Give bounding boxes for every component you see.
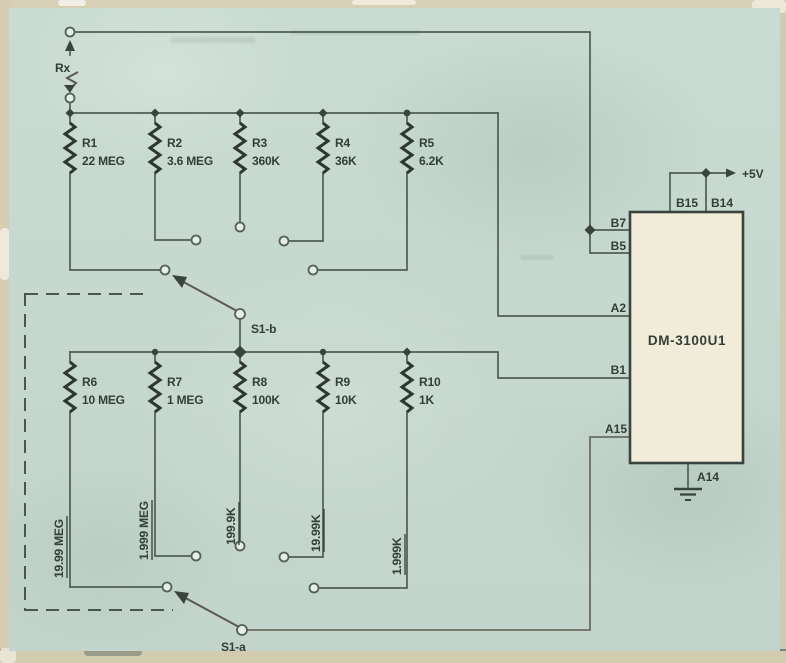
r4-value: 36K — [335, 154, 357, 168]
r8-name: R8 — [252, 375, 267, 389]
s1b-contact-4 — [280, 237, 289, 246]
switch-s1a-wiper — [174, 591, 239, 627]
pin-b15: B15 — [676, 196, 698, 210]
svg-text:1.999K: 1.999K — [390, 537, 404, 575]
pin-a15: A15 — [605, 422, 627, 436]
resistor-r10-symbol — [402, 362, 412, 412]
rx-bottom-terminal — [66, 94, 75, 103]
wire-rx-top-to-b7b5 — [75, 32, 590, 225]
resistor-r3-symbol — [235, 123, 245, 173]
r9-value: 10K — [335, 393, 357, 407]
range-label-1: 19.99 MEG — [52, 516, 67, 578]
rx-down-arrow — [64, 85, 75, 93]
r6-name: R6 — [82, 375, 97, 389]
s1a-label: S1-a — [221, 640, 246, 654]
s1a-contact-5 — [310, 584, 319, 593]
r6-value: 10 MEG — [82, 393, 125, 407]
ganged-switch-dashed-link — [25, 293, 173, 611]
s1a-contact-2 — [192, 552, 201, 561]
svg-text:1.999 MEG: 1.999 MEG — [137, 501, 151, 560]
range-label-4: 19.99K — [309, 509, 324, 552]
r1-value: 22 MEG — [82, 154, 125, 168]
range-label-3: 199.9K — [224, 502, 239, 545]
wire-col-r4 — [289, 113, 323, 241]
range-label-5: 1.999K — [390, 534, 405, 575]
svg-text:19.99K: 19.99K — [309, 514, 323, 552]
r5-name: R5 — [419, 136, 434, 150]
pin-a14: A14 — [697, 470, 719, 484]
resistor-r7-symbol — [150, 362, 160, 412]
resistor-r4-symbol — [318, 123, 328, 173]
supply-arrowhead — [726, 169, 736, 178]
supply-label: +5V — [742, 167, 764, 181]
r8-value: 100K — [252, 393, 280, 407]
schematic-canvas: DM-3100U1 Rx R1 22 MEG R2 3.6 MEG R3 360… — [0, 0, 786, 663]
s1b-contact-1 — [161, 266, 170, 275]
ic-dm3100u1: DM-3100U1 — [630, 212, 743, 463]
wire-col-r2 — [155, 113, 190, 240]
resistor-r2-symbol — [150, 123, 160, 173]
r9-name: R9 — [335, 375, 350, 389]
s1b-pivot — [235, 309, 245, 319]
scanned-schematic-page: DM-3100U1 Rx R1 22 MEG R2 3.6 MEG R3 360… — [0, 0, 786, 663]
switch-s1b-wiper — [172, 275, 237, 311]
ic-label: DM-3100U1 — [648, 333, 726, 348]
s1a-wiper-arrowhead — [174, 591, 189, 604]
svg-text:19.99 MEG: 19.99 MEG — [52, 519, 66, 578]
rx-top-terminal — [66, 28, 75, 37]
resistor-r1-symbol — [65, 123, 75, 173]
r1-name: R1 — [82, 136, 97, 150]
r7-value: 1 MEG — [167, 393, 203, 407]
r2-value: 3.6 MEG — [167, 154, 213, 168]
wire-a2 — [498, 113, 629, 316]
r3-name: R3 — [252, 136, 267, 150]
junction-markers — [66, 109, 712, 359]
rx-label: Rx — [55, 61, 70, 75]
rx-up-arrow — [65, 40, 75, 51]
wire-col-r5 — [318, 113, 407, 270]
r10-value: 1K — [419, 393, 434, 407]
r4-name: R4 — [335, 136, 350, 150]
pin-b5: B5 — [611, 239, 627, 253]
pin-a2: A2 — [611, 301, 627, 315]
range-label-2: 1.999 MEG — [137, 500, 152, 560]
resistor-r8-symbol — [235, 362, 245, 412]
s1b-contact-5 — [309, 266, 318, 275]
s1b-wiper-arrowhead — [172, 275, 187, 288]
r10-name: R10 — [419, 375, 441, 389]
r5-value: 6.2K — [419, 154, 444, 168]
r3-value: 360K — [252, 154, 280, 168]
r7-name: R7 — [167, 375, 182, 389]
pin-b1: B1 — [611, 363, 627, 377]
s1b-label: S1-b — [251, 322, 276, 336]
resistor-r9-symbol — [318, 362, 328, 412]
s1a-contact-4 — [280, 553, 289, 562]
s1b-contact-3 — [236, 223, 245, 232]
s1a-pivot — [237, 625, 247, 635]
s1b-contact-2 — [192, 236, 201, 245]
resistor-r6-symbol — [65, 362, 75, 412]
svg-text:199.9K: 199.9K — [224, 507, 238, 545]
s1a-contact-1 — [163, 583, 172, 592]
ground-symbol — [674, 489, 702, 500]
r2-name: R2 — [167, 136, 182, 150]
wire-s1a-to-a15 — [247, 437, 629, 630]
pin-b14: B14 — [711, 196, 733, 210]
resistor-r5-symbol — [402, 123, 412, 173]
pin-b7: B7 — [611, 216, 627, 230]
